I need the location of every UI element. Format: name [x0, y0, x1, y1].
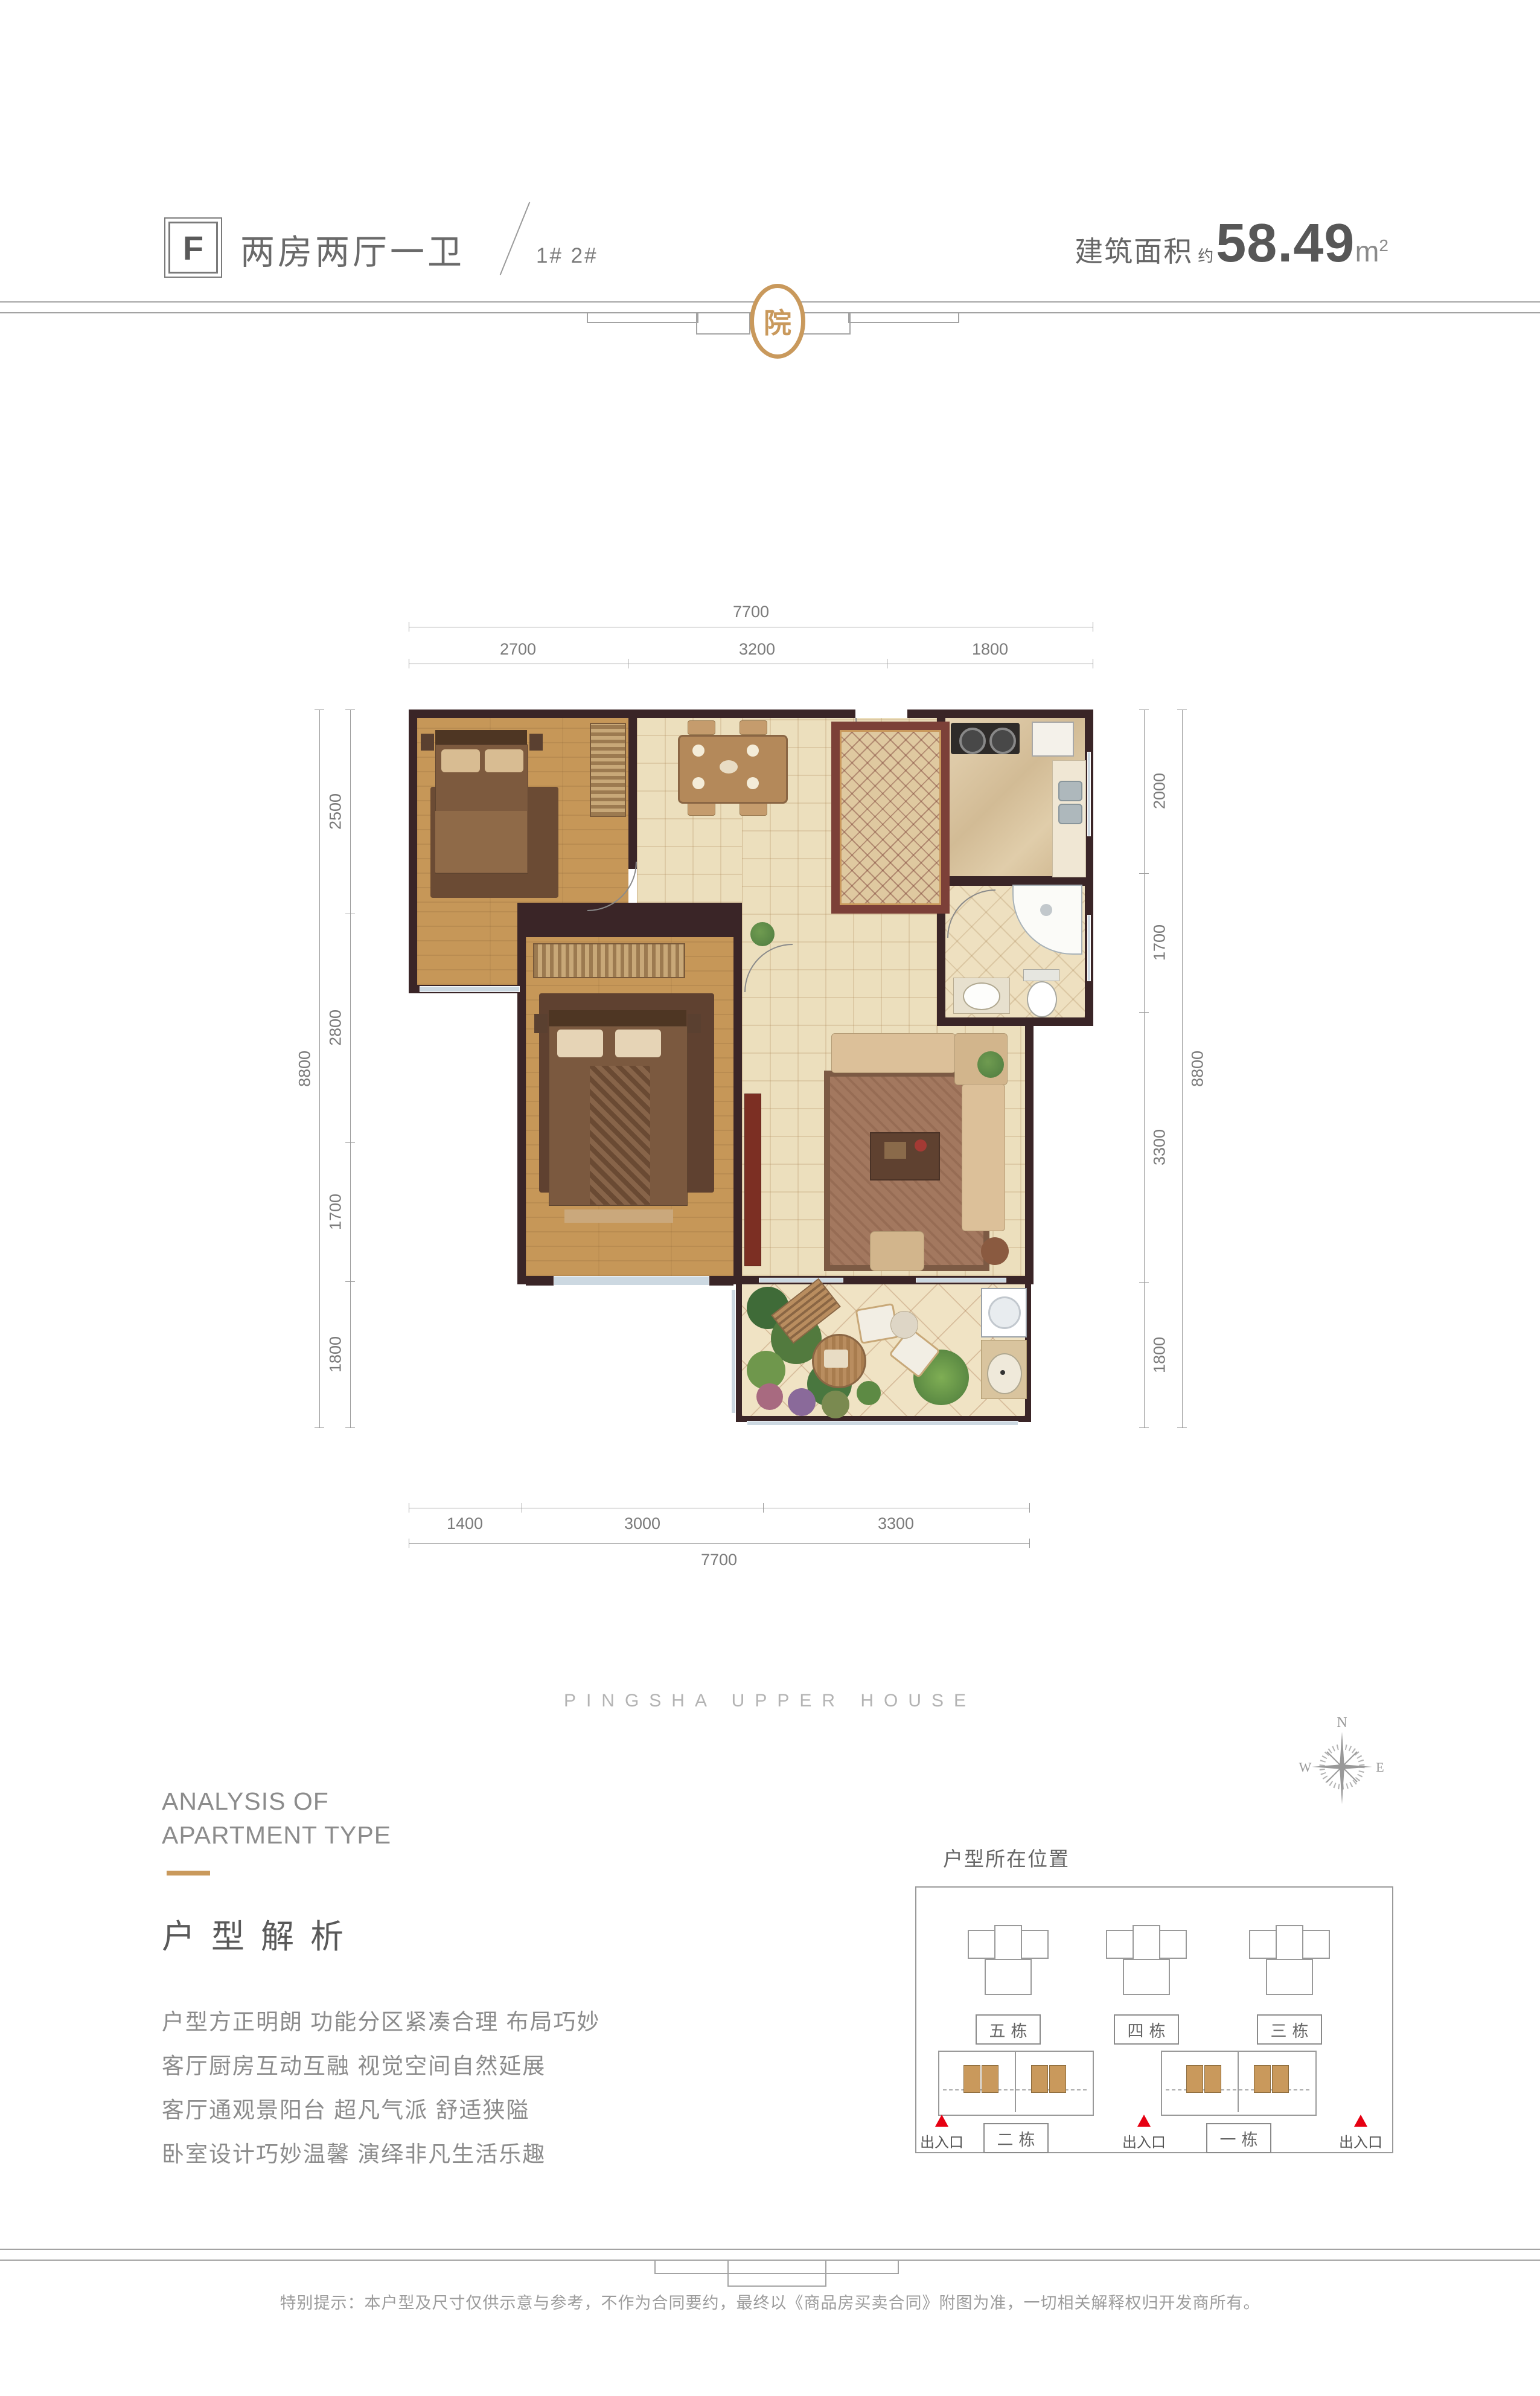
building-3-outline: [1249, 1921, 1328, 1993]
svg-text:E: E: [1376, 1760, 1384, 1775]
type-name: 两房两厅一卫: [240, 225, 465, 274]
dim-tick: [1139, 710, 1149, 710]
pouf: [981, 1237, 1009, 1265]
dim-left-seg: 2800: [327, 1010, 345, 1046]
dim-right-seg: 1700: [1151, 924, 1169, 961]
wall-segment: [409, 710, 1093, 718]
dim-tick: [409, 1503, 409, 1513]
analysis-en-line2: APARTMENT TYPE: [162, 1821, 391, 1850]
location-map: 五栋 四栋 三栋 二栋 一栋 出入口 出入口 出入口: [915, 1886, 1393, 2153]
area-label: 建筑面积: [1075, 228, 1193, 270]
dim-line: [350, 710, 351, 1428]
building-5-outline: [968, 1921, 1046, 1993]
dim-tick: [345, 914, 355, 914]
building-2-outline: [938, 2051, 1094, 2116]
disclaimer-text: 特别提示：本户型及尺寸仅供示意与参考，不作为合同要约，最终以《商品房买卖合同》附…: [0, 2290, 1540, 2313]
toilet-tank: [1023, 969, 1059, 981]
brand-wordmark: PINGSHA UPPER HOUSE: [0, 1691, 1540, 1711]
svg-text:N: N: [1337, 1715, 1347, 1731]
divider-step: [727, 2261, 826, 2287]
dim-tick: [522, 1503, 522, 1513]
dim-bottom-seg: 3300: [878, 1514, 914, 1533]
drain: [1000, 1370, 1005, 1375]
analysis-point: 户型方正明朗 功能分区紧凑合理 布局巧妙: [162, 2004, 601, 2036]
entry-rug: [831, 722, 950, 914]
wall-segment: [628, 718, 637, 869]
dim-tick: [1029, 1539, 1030, 1548]
dim-tick: [887, 659, 887, 668]
dim-bottom-seg: 1400: [447, 1514, 483, 1533]
area-approx: 约: [1198, 244, 1213, 266]
area-value: 58.49: [1216, 213, 1355, 275]
window: [731, 1289, 736, 1414]
dim-top-seg: 2700: [500, 640, 536, 659]
highlighted-unit: [1204, 2065, 1221, 2093]
area-unit: m2: [1355, 235, 1388, 269]
washbasin: [963, 982, 1000, 1010]
brand-logo: 院: [750, 284, 805, 359]
blanket: [435, 811, 527, 873]
wall-segment: [736, 1284, 742, 1421]
building-5-label: 五栋: [976, 2014, 1041, 2045]
wall-segment: [733, 911, 742, 1276]
plate: [747, 745, 759, 757]
dim-top-seg: 3200: [739, 640, 775, 659]
highlighted-unit: [1031, 2065, 1048, 2093]
tray: [884, 1142, 906, 1159]
toilet: [1027, 981, 1057, 1017]
dim-line: [409, 627, 1093, 627]
plate: [747, 777, 759, 789]
dim-top-seg: 1800: [972, 640, 1008, 659]
burner: [989, 728, 1016, 754]
dim-left-overall: 8800: [296, 1051, 315, 1087]
entrance-arrow-icon: [1137, 2115, 1151, 2127]
highlighted-unit: [982, 2065, 998, 2093]
plate: [692, 777, 705, 789]
dim-line: [1144, 710, 1145, 1428]
dim-tick: [628, 659, 628, 668]
dim-tick: [1139, 873, 1149, 874]
analysis-point: 客厅厨房互动互融 视觉空间自然延展: [162, 2048, 546, 2080]
dim-tick: [1093, 659, 1093, 668]
dim-tick: [1029, 1503, 1030, 1513]
wardrobe: [533, 943, 685, 978]
entrance-opening: [855, 710, 907, 718]
chair: [740, 720, 767, 735]
highlighted-unit: [963, 2065, 980, 2093]
dim-right-overall: 8800: [1189, 1051, 1207, 1087]
bed-headboard: [549, 1010, 686, 1026]
sink-basin: [1058, 804, 1082, 824]
side-table: [890, 1311, 918, 1339]
pillow: [485, 749, 523, 772]
dim-tick: [315, 1427, 324, 1428]
highlighted-unit: [1049, 2065, 1066, 2093]
kitchen-appliance: [1032, 722, 1074, 757]
dim-left-seg: 1700: [327, 1194, 345, 1230]
compass-icon: N W E: [1297, 1714, 1387, 1810]
tv-cabinet: [744, 1094, 761, 1266]
burner: [959, 728, 986, 754]
entrance-label: 出入口: [1122, 2130, 1166, 2151]
wall-segment: [526, 1276, 554, 1286]
tray: [824, 1350, 848, 1368]
dim-tick: [345, 1142, 355, 1143]
divider-step: [587, 313, 698, 323]
building-4-label: 四栋: [1114, 2014, 1179, 2045]
divider-step: [696, 313, 750, 335]
nightstand: [688, 1014, 701, 1033]
bed-headboard: [435, 730, 527, 745]
wall-segment: [937, 1017, 1093, 1026]
window: [1087, 752, 1091, 836]
dim-tick: [345, 1427, 355, 1428]
window: [916, 1278, 1006, 1283]
building-numbers: 1# 2#: [536, 244, 598, 268]
dim-tick: [409, 622, 409, 632]
sink-basin: [1058, 781, 1082, 801]
dim-tick: [1139, 1012, 1149, 1013]
dim-tick: [1093, 622, 1093, 632]
divider-line: [0, 2249, 1540, 2250]
dim-bottom-seg: 3000: [624, 1514, 660, 1533]
dim-right-seg: 1800: [1151, 1337, 1169, 1373]
building-2-label: 二栋: [983, 2123, 1049, 2153]
analysis-point: 卧室设计巧妙温馨 演绎非凡生活乐趣: [162, 2136, 546, 2168]
dim-tick: [1177, 1427, 1187, 1428]
entrance-arrow-icon: [935, 2115, 948, 2127]
flower-ball: [788, 1388, 816, 1416]
entrance-label: 出入口: [1339, 2130, 1382, 2151]
building-4-outline: [1106, 1921, 1184, 1993]
plant: [977, 1051, 1004, 1078]
shower-drain: [1040, 904, 1052, 916]
analysis-zh-title: 户型解析: [162, 1909, 360, 1958]
entrance-label: 出入口: [920, 2130, 963, 2151]
flower-ball: [857, 1381, 881, 1405]
highlighted-unit: [1186, 2065, 1203, 2093]
chair: [688, 720, 715, 735]
wall-segment: [709, 1276, 733, 1286]
entrance-arrow-icon: [1354, 2115, 1367, 2127]
dim-tick: [409, 659, 409, 668]
accent-rule: [167, 1871, 210, 1875]
window: [1087, 915, 1091, 981]
highlighted-unit: [1254, 2065, 1271, 2093]
floorplan: [409, 710, 1093, 1428]
bed-bench: [564, 1209, 673, 1223]
svg-text:W: W: [1299, 1760, 1312, 1775]
analysis-point: 客厅通观景阳台 超凡气派 舒适狭隘: [162, 2092, 530, 2124]
sofa-chaise: [962, 1084, 1005, 1231]
wall-segment: [409, 710, 417, 993]
flower-ball: [756, 1383, 783, 1410]
dim-line: [409, 1508, 1029, 1508]
bed-runner: [590, 1066, 650, 1205]
flowers: [915, 1139, 927, 1152]
highlighted-unit: [1272, 2065, 1289, 2093]
dim-left-seg: 1800: [327, 1336, 345, 1373]
dim-tick: [763, 1503, 764, 1513]
washer-drum: [988, 1296, 1021, 1329]
plant: [750, 922, 775, 946]
slash-divider: [500, 202, 531, 275]
dim-top-overall: 7700: [733, 603, 769, 621]
window: [747, 1421, 1018, 1426]
dim-bottom-overall: 7700: [701, 1551, 737, 1569]
plate: [692, 745, 705, 757]
dim-tick: [1139, 1427, 1149, 1428]
wardrobe: [590, 723, 626, 817]
centerpiece: [720, 760, 738, 774]
type-letter: F: [168, 222, 218, 274]
window: [759, 1278, 843, 1283]
brochure-page: F 两房两厅一卫 1# 2# 建筑面积 约 58.49 m2 院 7700 27…: [0, 0, 1540, 2396]
building-3-label: 三栋: [1257, 2014, 1322, 2045]
dim-tick: [315, 710, 324, 710]
analysis-en-line1: ANALYSIS OF: [162, 1787, 329, 1816]
area-group: 建筑面积 约 58.49 m2: [966, 213, 1388, 275]
dim-left-seg: 2500: [327, 793, 345, 830]
flower-ball: [822, 1391, 849, 1418]
pillow: [615, 1030, 661, 1057]
wall-segment: [1025, 1026, 1034, 1284]
dim-line: [409, 1543, 1029, 1544]
bedroom-2-floor-ext: [417, 903, 517, 985]
type-letter-box: F: [164, 217, 222, 278]
building-1-label: 一栋: [1206, 2123, 1271, 2153]
wall-segment: [517, 903, 742, 937]
nightstand: [534, 1014, 548, 1033]
building-1-outline: [1161, 2051, 1317, 2116]
dim-line: [409, 664, 1093, 664]
window: [420, 986, 520, 992]
nightstand: [421, 734, 434, 751]
armchair: [870, 1231, 924, 1271]
dim-line: [1182, 710, 1183, 1428]
dim-right-seg: 3300: [1151, 1129, 1169, 1165]
pillow: [557, 1030, 603, 1057]
nightstand: [529, 734, 543, 751]
wall-segment: [517, 911, 526, 1284]
dim-tick: [409, 1539, 409, 1548]
dim-right-seg: 2000: [1151, 773, 1169, 809]
dim-tick: [1177, 710, 1187, 710]
dim-tick: [345, 710, 355, 710]
sofa: [831, 1033, 956, 1073]
divider-step: [848, 313, 959, 323]
dim-tick: [345, 1281, 355, 1282]
window: [554, 1276, 709, 1286]
dim-line: [319, 710, 320, 1428]
pillow: [441, 749, 480, 772]
dim-tick: [1139, 1282, 1149, 1283]
location-title: 户型所在位置: [943, 1843, 1070, 1872]
